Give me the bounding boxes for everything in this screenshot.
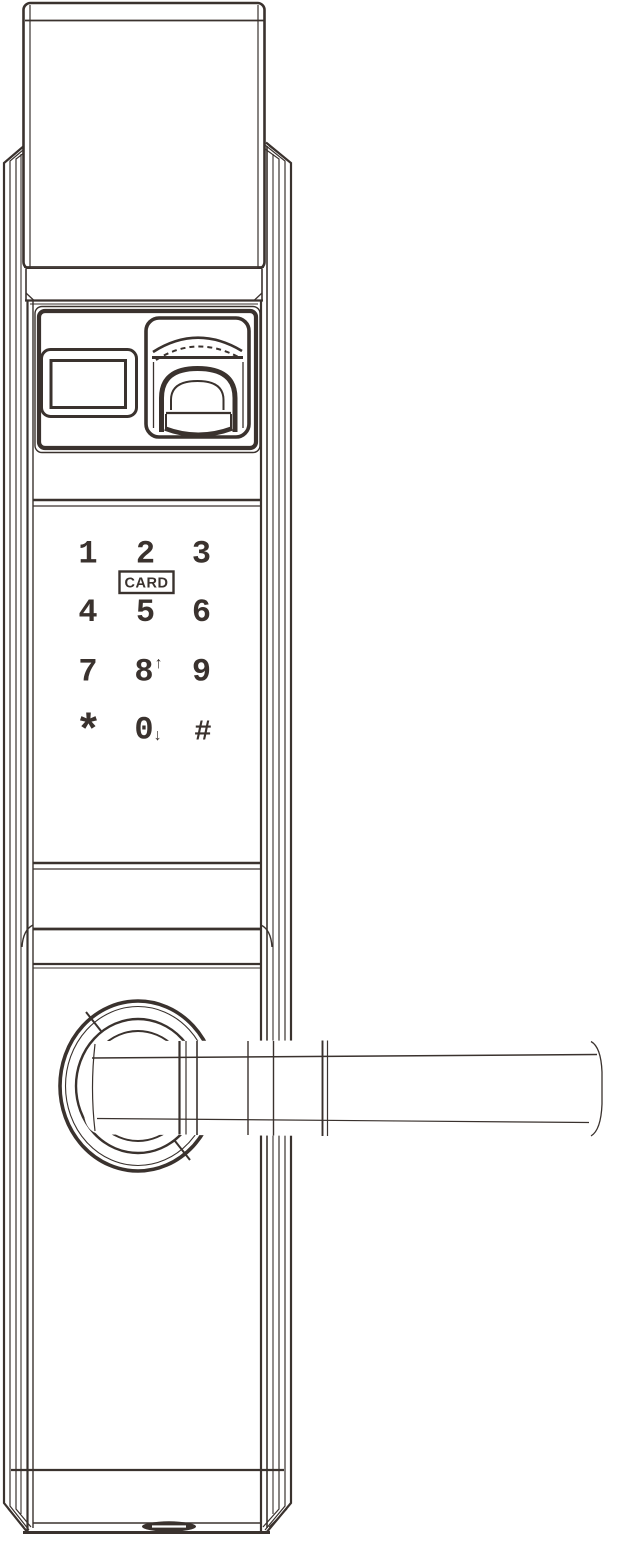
key-star[interactable]: * [75, 708, 101, 758]
svg-text:#: # [194, 716, 211, 749]
key-5[interactable]: 5 [136, 594, 155, 631]
right-edge-line-3 [263, 148, 279, 1528]
sensor-base-bottom [165, 429, 232, 435]
svg-text:1: 1 [78, 536, 97, 573]
cover-arc [153, 338, 242, 352]
key-2[interactable]: 2 [136, 536, 155, 573]
bottom-port[interactable] [142, 1521, 196, 1531]
up-arrow-icon: ↑ [154, 655, 164, 673]
svg-text:6: 6 [192, 594, 211, 631]
svg-text:4: 4 [78, 594, 97, 631]
key-8[interactable]: 8 ↑ [134, 654, 163, 691]
key-4[interactable]: 4 [78, 594, 97, 631]
key-1[interactable]: 1 [78, 536, 97, 573]
svg-text:9: 9 [192, 654, 211, 691]
fingerprint-reader[interactable] [146, 318, 249, 437]
display-window-icon [51, 361, 126, 408]
left-edge-line-3 [16, 148, 31, 1528]
key-hash[interactable]: # [194, 716, 211, 749]
card-label: CARD [125, 576, 169, 592]
left-edge-line-2 [10, 145, 29, 1530]
key-9[interactable]: 9 [192, 654, 211, 691]
svg-text:8: 8 [134, 654, 153, 691]
card-reader-zone[interactable]: CARD [120, 572, 174, 594]
svg-text:7: 7 [78, 654, 97, 691]
sensor-inner-arch [171, 381, 224, 410]
svg-text:*: * [75, 708, 101, 758]
down-arrow-icon: ↓ [153, 727, 163, 745]
fingerprint-panel [35, 307, 260, 453]
top-cap [23, 2, 265, 304]
key-0[interactable]: 0 ↓ [134, 712, 162, 749]
door-handle[interactable] [60, 1001, 609, 1171]
cap-face [23, 2, 265, 271]
svg-text:5: 5 [136, 594, 155, 631]
cap-collar [25, 269, 263, 304]
right-edge-line-2 [265, 145, 285, 1530]
svg-text:2: 2 [136, 536, 155, 573]
svg-text:3: 3 [192, 536, 211, 573]
key-6[interactable]: 6 [192, 594, 211, 631]
handle-lever[interactable] [83, 1040, 609, 1138]
status-display [42, 350, 137, 417]
key-3[interactable]: 3 [192, 536, 211, 573]
key-7[interactable]: 7 [78, 654, 97, 691]
door-lock-drawing: 1 2 3 CARD 4 5 6 7 8 ↑ 9 * 0 ↓ # [0, 0, 617, 1541]
keypad: 1 2 3 CARD 4 5 6 7 8 ↑ 9 * 0 ↓ # [75, 536, 211, 759]
svg-text:0: 0 [134, 712, 153, 749]
